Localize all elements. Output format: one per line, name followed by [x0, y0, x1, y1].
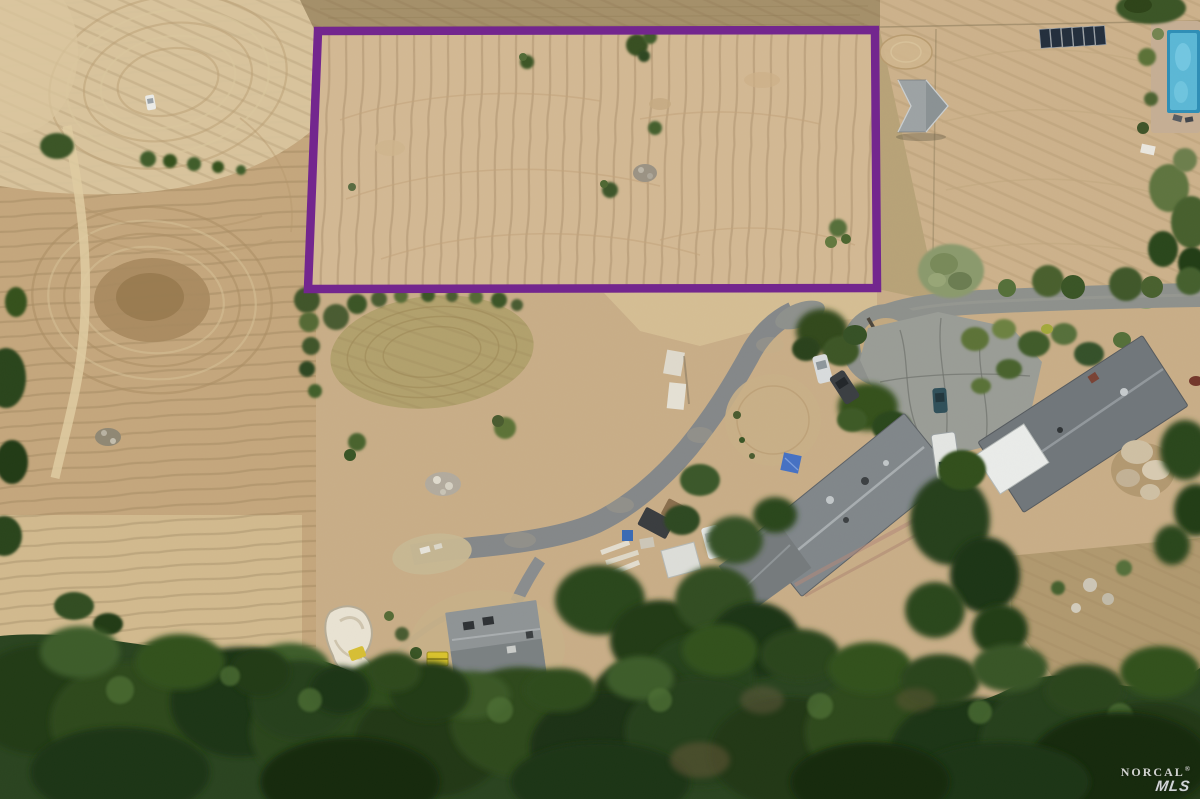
photo-grain	[0, 0, 1200, 799]
mls-watermark: NORCAL® MLS	[1121, 766, 1190, 794]
aerial-photo: NORCAL® MLS	[0, 0, 1200, 799]
watermark-brand-line: NORCAL®	[1121, 766, 1190, 778]
watermark-sub-brand: MLS	[1120, 779, 1191, 794]
watermark-brand: NORCAL	[1121, 765, 1185, 779]
aerial-photo-svg	[0, 0, 1200, 799]
scene-layer	[0, 0, 1200, 799]
registered-mark-icon: ®	[1185, 765, 1190, 773]
